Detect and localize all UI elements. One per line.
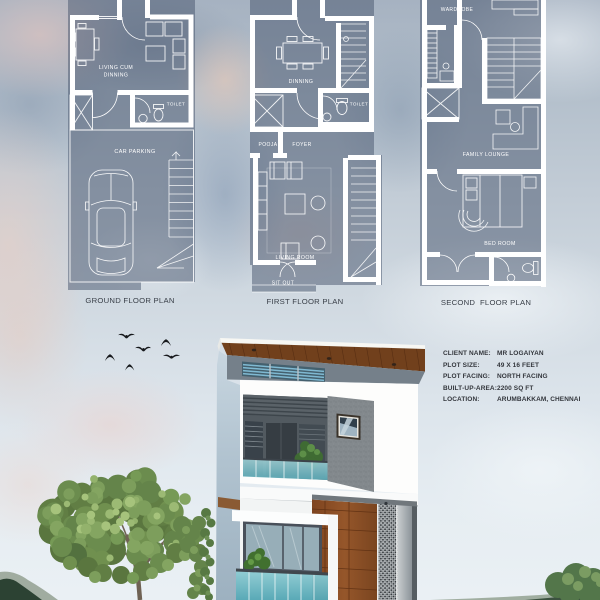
- svg-text:FOYER: FOYER: [292, 142, 311, 148]
- svg-text:CAR PARKING: CAR PARKING: [114, 149, 155, 155]
- svg-text:BED ROOM: BED ROOM: [484, 241, 515, 247]
- svg-text:LIVING CUM: LIVING CUM: [99, 65, 133, 71]
- svg-text:TOILET: TOILET: [350, 102, 368, 107]
- svg-text:POOJA: POOJA: [259, 142, 278, 148]
- svg-text:DINNING: DINNING: [289, 79, 314, 85]
- svg-text:FAMILY LOUNGE: FAMILY LOUNGE: [463, 152, 510, 158]
- svg-text:SIT OUT: SIT OUT: [272, 281, 294, 287]
- svg-text:DINNING: DINNING: [104, 73, 129, 79]
- svg-text:WARDROBE: WARDROBE: [441, 7, 474, 13]
- svg-text:TOILET: TOILET: [167, 102, 185, 107]
- svg-text:LIVING ROOM: LIVING ROOM: [276, 255, 315, 261]
